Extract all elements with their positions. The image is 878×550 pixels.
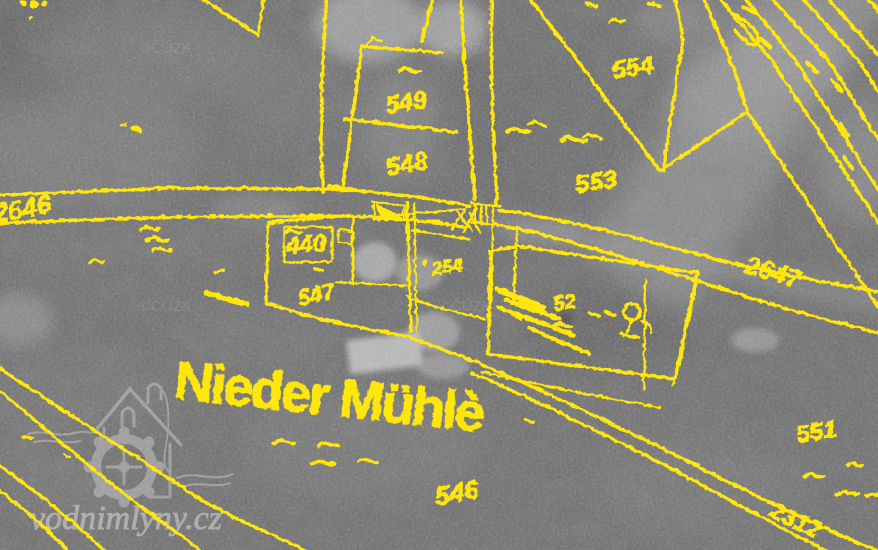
svg-text:©ČÚZK: ©ČÚZK <box>140 40 192 57</box>
svg-text:52: 52 <box>551 290 576 315</box>
svg-text:vodnimlyny.cz: vodnimlyny.cz <box>30 500 222 537</box>
svg-text:©ČÚZK: ©ČÚZK <box>440 40 492 57</box>
svg-text:440: 440 <box>283 228 327 259</box>
svg-text:©ČÚZK: ©ČÚZK <box>140 298 192 315</box>
